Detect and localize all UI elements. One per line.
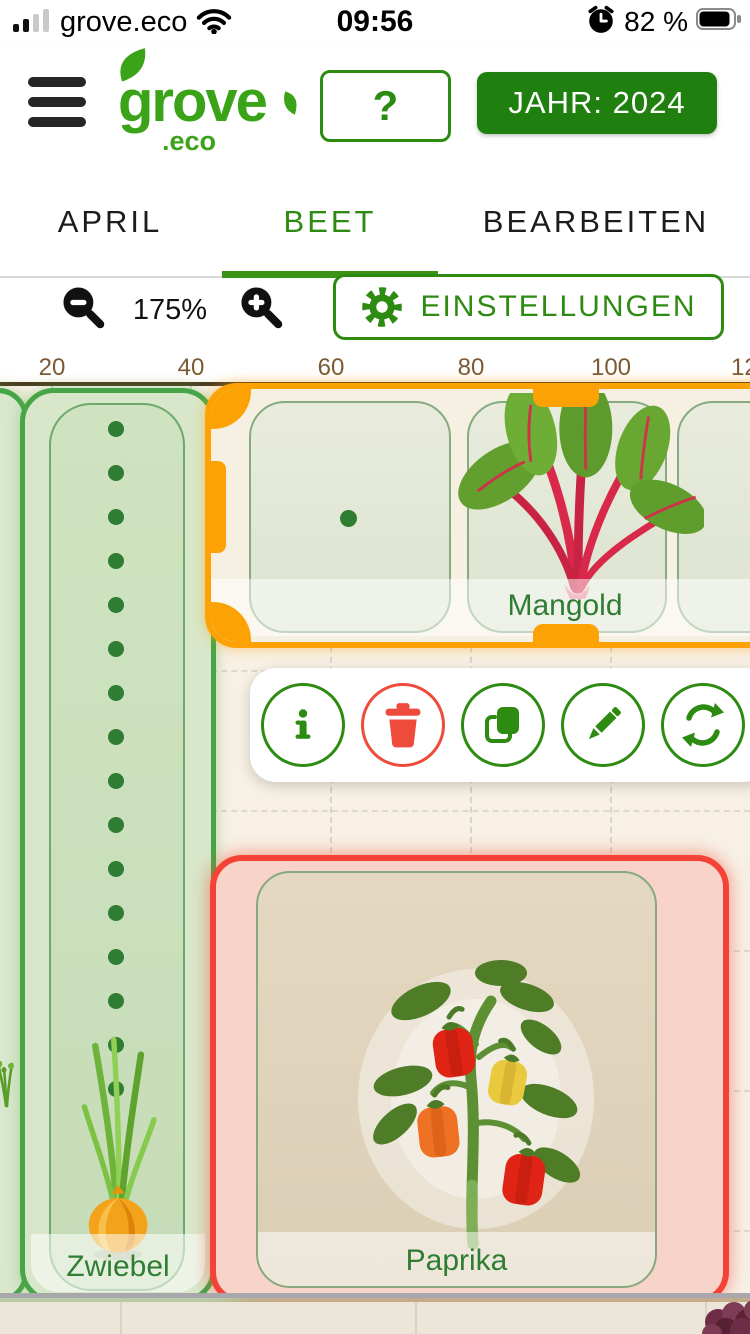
- onion-illustration: [59, 1033, 175, 1266]
- ruler-tick: 60: [301, 354, 361, 382]
- app-header: grove .eco ? JAHR: 2024: [0, 44, 750, 168]
- copy-icon: [479, 701, 527, 749]
- settings-label: EINSTELLUNGEN: [420, 290, 696, 324]
- ruler-tick: 120: [721, 354, 750, 382]
- next-bed-row: [0, 1302, 750, 1334]
- tab-bar: APRIL BEET BEARBEITEN: [0, 168, 750, 278]
- zoom-in-button[interactable]: [238, 284, 284, 335]
- bed-mangold-selected[interactable]: Mangold: [205, 383, 750, 648]
- bed-zwiebel-label: Zwiebel: [25, 1250, 211, 1284]
- ruler-tick: 100: [581, 354, 641, 382]
- bed-paprika-label: Paprika: [258, 1244, 655, 1278]
- seed-dot: [108, 597, 124, 613]
- year-label: JAHR: 2024: [508, 85, 685, 121]
- battery-icon: [696, 8, 742, 37]
- rotate-icon: [679, 701, 727, 749]
- seed-dot: [108, 773, 124, 789]
- logo-leaf-small-icon: [273, 87, 304, 119]
- grove-logo[interactable]: grove .eco: [112, 50, 297, 162]
- status-bar: grove.eco 09:56 82 %: [0, 0, 750, 44]
- ruler-tick: 20: [22, 354, 82, 382]
- help-button[interactable]: ?: [320, 70, 451, 142]
- resize-handle-top[interactable]: [533, 389, 599, 407]
- zoom-level: 175%: [118, 294, 222, 327]
- bed-mangold-label: Mangold: [467, 589, 663, 623]
- seed-dot: [108, 949, 124, 965]
- seed-dot: [108, 905, 124, 921]
- settings-button[interactable]: EINSTELLUNGEN: [333, 274, 724, 340]
- pencil-icon: [579, 701, 627, 749]
- battery-percent: 82 %: [624, 6, 688, 38]
- seed-dot: [108, 509, 124, 525]
- seed-dot: [108, 993, 124, 1009]
- seed-dot: [108, 729, 124, 745]
- ruler-tick: 40: [161, 354, 221, 382]
- year-button[interactable]: JAHR: 2024: [477, 72, 717, 134]
- trash-icon: [380, 701, 426, 749]
- pepper-illustration: [350, 949, 602, 1254]
- edit-button[interactable]: [561, 683, 645, 767]
- seed-dot: [108, 421, 124, 437]
- bed-paprika-selected[interactable]: Paprika: [210, 855, 729, 1304]
- logo-tld: .eco: [162, 126, 216, 157]
- plant-spot-dot: [340, 510, 357, 527]
- seed-dot: [108, 641, 124, 657]
- resize-handle-left[interactable]: [211, 461, 226, 553]
- bed-zwiebel[interactable]: Zwiebel: [20, 388, 216, 1303]
- red-lettuce-illustration: [690, 1296, 750, 1334]
- tab-beet[interactable]: BEET: [260, 168, 400, 276]
- resize-handle-top-left[interactable]: [205, 383, 251, 429]
- tab-april[interactable]: APRIL: [40, 168, 180, 276]
- rotate-button[interactable]: [661, 683, 745, 767]
- plot-cell: Paprika: [256, 871, 657, 1288]
- selection-toolbar: [250, 668, 750, 782]
- seed-dot: [108, 553, 124, 569]
- zoom-out-button[interactable]: [60, 284, 106, 335]
- alarm-clock-icon: [586, 5, 616, 40]
- zoom-controls: 175% EINSTELLUNGEN: [0, 278, 750, 352]
- logo-text: grove: [118, 68, 266, 135]
- small-plant-illustration: [0, 1058, 18, 1113]
- hamburger-menu-button[interactable]: [28, 77, 86, 127]
- help-label: ?: [373, 82, 399, 130]
- seed-dot: [108, 817, 124, 833]
- info-button[interactable]: [261, 683, 345, 767]
- mangold-illustration: [448, 393, 704, 604]
- gear-icon: [360, 285, 404, 329]
- ruler-tick: 80: [441, 354, 501, 382]
- seed-dot: [108, 861, 124, 877]
- tab-bearbeiten[interactable]: BEARBEITEN: [446, 168, 746, 276]
- garden-canvas[interactable]: 20 40 60 80 100 120: [0, 352, 750, 1334]
- resize-handle-bottom[interactable]: [533, 624, 599, 642]
- seed-dot: [108, 685, 124, 701]
- duplicate-button[interactable]: [461, 683, 545, 767]
- seed-dot: [108, 465, 124, 481]
- info-icon: [279, 701, 327, 749]
- delete-button[interactable]: [361, 683, 445, 767]
